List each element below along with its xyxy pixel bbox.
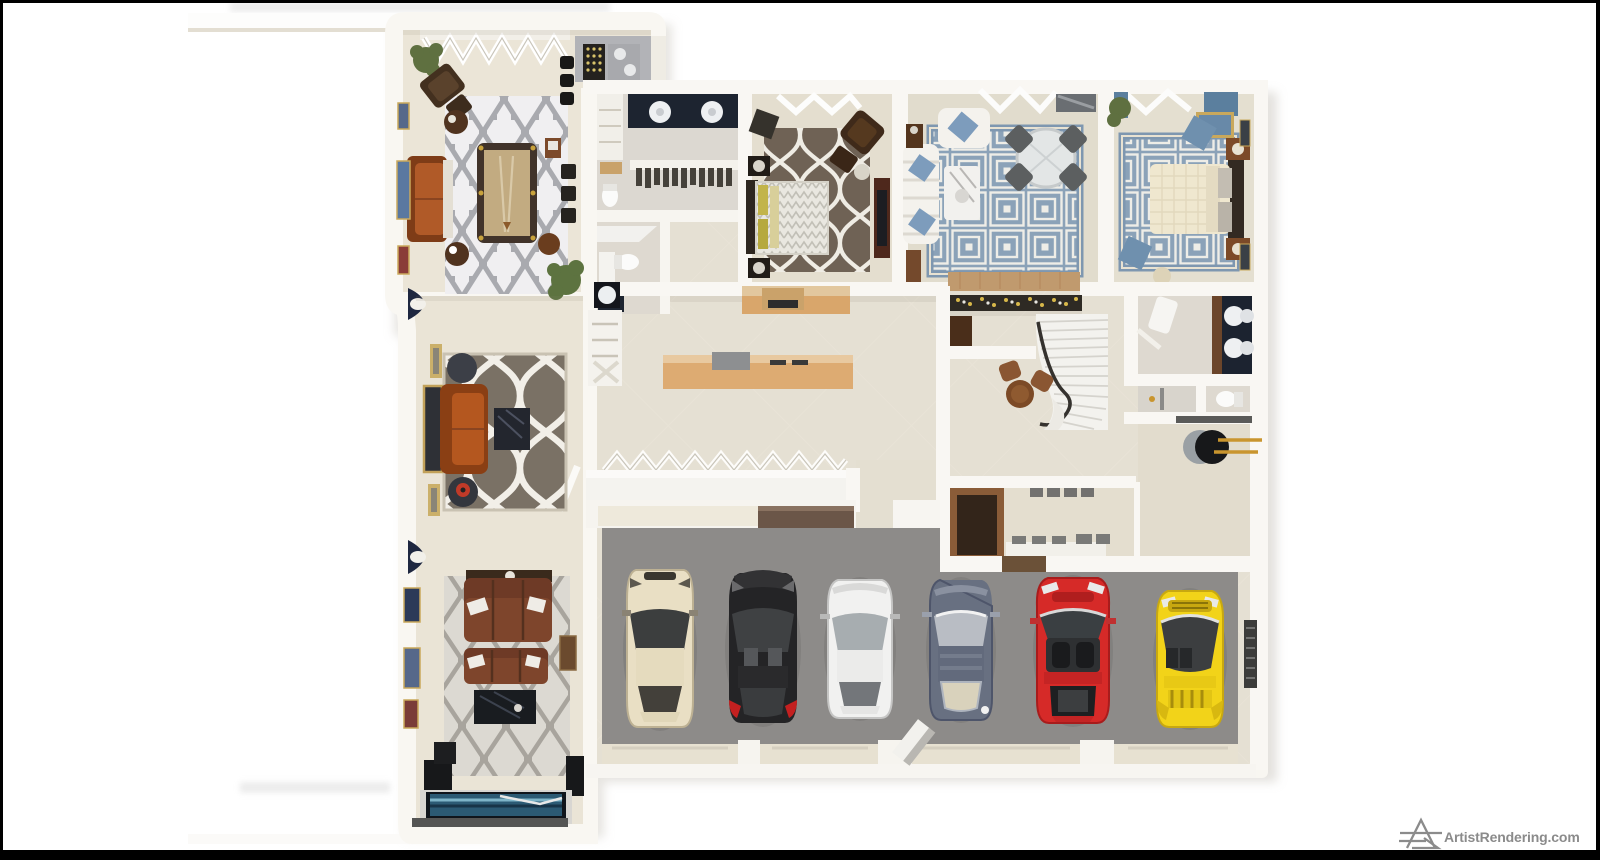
svg-text:ArtistRendering.com: ArtistRendering.com xyxy=(1444,829,1580,845)
